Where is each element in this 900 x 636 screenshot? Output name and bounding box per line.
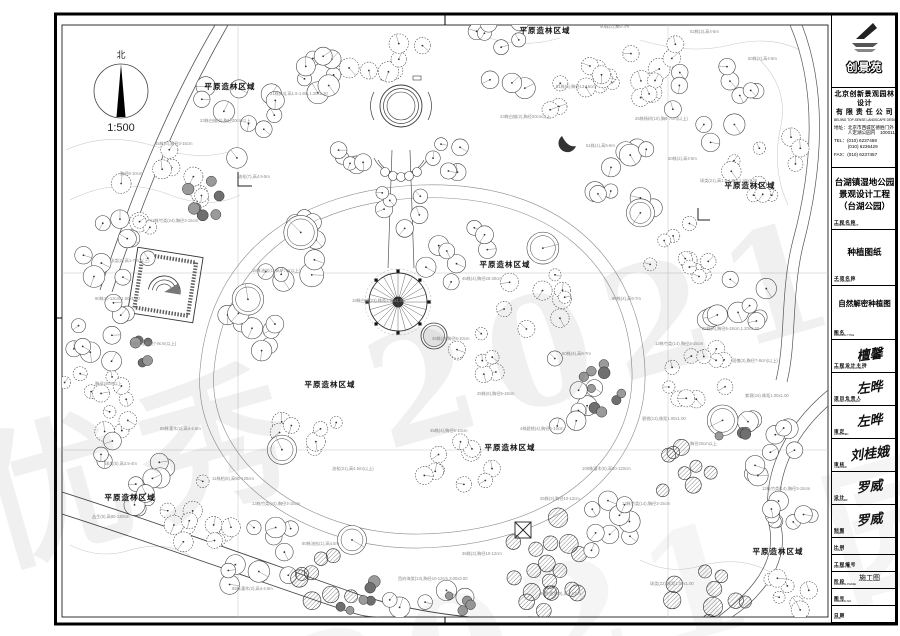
project-name-cell: 台湖镇湿地公园 景观设计工程 （台湖公园） 工程名称 NAME OF PROJE… xyxy=(832,168,897,230)
plant-annotation: 25株(6),胸径5-18cm xyxy=(477,390,515,397)
plant-annotation: 90株(2),高6-7m xyxy=(600,23,629,30)
road-left-curve xyxy=(100,25,228,292)
plant-annotation: 胸径8-10cm xyxy=(120,170,143,177)
row-label-en: DRAWING NO. xyxy=(834,601,852,604)
plant-annotation: 31株(24),高1.5-1.8m,1.20x1.20 xyxy=(270,90,328,97)
region-label: 平原造林区域 xyxy=(520,25,571,35)
signature: 左晔 xyxy=(843,404,897,435)
fan-flowerbed xyxy=(374,158,428,182)
plant-annotation: 13株竹类(24),胸径3-15cm xyxy=(252,500,301,507)
plant-annotation: 球类(2),高1-7m(以上) xyxy=(110,257,150,264)
titleblock-row-5: 制图DRAWN罗威 xyxy=(832,505,897,538)
titleblock-rows: 工程设计主持PROJECT CONSULTANT檀馨项目负责人PROJECT M… xyxy=(832,340,897,623)
row-label-en: PROJECT MANAGER xyxy=(834,401,862,404)
subitem-name: 种植图纸 xyxy=(832,246,897,258)
titleblock-row-6: 比例SCALE xyxy=(832,538,897,555)
company-name-line1: 北京创新景观园林设计 xyxy=(834,90,895,108)
plant-annotation: 90株10-12cm,1.00x1.00 xyxy=(95,295,140,302)
region-label: 平原造林区域 xyxy=(753,546,804,556)
road-bottom-band xyxy=(62,492,470,617)
plant-annotation: 35株(3),胸径10-12cm xyxy=(462,550,502,557)
plant-annotation: 13株竹类(24),胸径3-15cm xyxy=(150,217,199,224)
plant-annotation: 25株(3),胸径10-12cm xyxy=(540,495,580,502)
plant-annotation: 90株(4),高6-7m xyxy=(612,295,641,302)
titleblock-row-0: 工程设计主持PROJECT CONSULTANT檀馨 xyxy=(832,340,897,373)
tree-symbols xyxy=(58,0,818,636)
drawing-title: 自然解密种植图 xyxy=(832,298,897,310)
plant-annotation: 50株(2),高4-5m xyxy=(668,155,697,162)
scale-label: 1:500 xyxy=(107,122,135,134)
region-label: 平原造林区域 xyxy=(105,492,156,502)
drawing-title-label-en: DRAWING TITLE xyxy=(834,335,854,338)
square-structure xyxy=(515,522,531,538)
titleblock-row-10: 日期DATE xyxy=(832,606,897,623)
plant-annotation: 18株油松(1),高5-7m(以上) xyxy=(252,267,301,274)
signature: 罗威 xyxy=(843,470,897,501)
plant-annotation: 52株(3),高4-5m xyxy=(690,28,719,35)
plant-annotation: 45株(4),胸径5-10cm xyxy=(430,427,468,434)
region-label: 平原造林区域 xyxy=(305,379,356,389)
titleblock-row-9: 图号DRAWING NO. xyxy=(832,589,897,606)
plant-annotation: 13株竹类(14),胸径3-15cm xyxy=(655,340,704,347)
row-value xyxy=(844,556,895,565)
company-fax: FAX：(010) 6237457 xyxy=(834,152,895,158)
plant-annotation: 丛生(5),高80-120cm xyxy=(92,513,130,520)
region-labels: 平原造林区域平原造林区域平原造林区域平原造林区域平原造林区域平原造林区域平原造林… xyxy=(105,25,804,556)
row-label-en: DATE xyxy=(834,618,845,621)
company-address: 地址：北京市西城区德胜门外 人定湖公园内 100011 xyxy=(834,125,895,136)
plant-annotation: 45株(6),胸径3-15cm xyxy=(155,140,193,147)
row-label-en: SCALE xyxy=(834,550,845,553)
plant-annotation: 23株白蜡(2),胸径20cm以上 xyxy=(500,113,551,120)
plant-annotation: 23株白蜡(2),胸径20cm以上 xyxy=(200,117,251,124)
plant-annotation: 13株竹类(14),胸径3-15cm xyxy=(762,485,811,492)
row-label-en: PROJECT NO. xyxy=(834,567,856,570)
signature: 罗威 xyxy=(843,503,897,534)
plant-annotation: 紫薇(16),株距1.00x1.00 xyxy=(745,392,789,399)
plant-annotation: 油松(7),高4.5-5m xyxy=(238,173,270,180)
signature: 左晔 xyxy=(843,371,897,402)
company-name-line2: 有 限 责 任 公 司 xyxy=(834,108,895,117)
company-tel: TEL：(010) 6237458 (010) 6236429 xyxy=(834,138,895,149)
row-label-en: DRAWING PHASE xyxy=(834,584,856,587)
plant-annotation: 50株(4),高6-7m xyxy=(562,350,591,357)
plant-annotation: 85株灌木(2),高4-4.5m xyxy=(232,585,273,592)
title-block: 创景苑 北京创新景观园林设计 有 限 责 任 公 司 BEIJING TOP-S… xyxy=(831,13,897,624)
plant-annotation: 108株灌木(5),高80-120cm xyxy=(582,465,631,472)
plant-annotation: 4株碧桃(4),胸径5-10cm xyxy=(520,425,564,432)
region-label: 平原造林区域 xyxy=(725,180,776,190)
plant-annotation: 98株灌木(3),高4-4.5m xyxy=(540,590,581,597)
plant-annotation: 西府海棠(13),胸径10-12cm,3.00x3.00 xyxy=(398,575,468,582)
plant-annotation: 球类(5),高3.5-4m xyxy=(105,460,137,467)
plant-annotation: 45株(4),胸径25-30cm xyxy=(462,275,502,282)
logo-cell: 创景苑 xyxy=(832,13,897,88)
row-label-en: PROJECT CONSULTANT xyxy=(834,368,868,371)
plant-annotation: 13株竹类(14),胸径3-15cm xyxy=(622,500,671,507)
plant-annotation: 85株灌木(2),高4-4.5m xyxy=(160,425,201,432)
subitem-cell: 种植图纸 子项名称 SUB PROJECT xyxy=(832,230,897,286)
project-name: 台湖镇湿地公园 景观设计工程 （台湖公园） xyxy=(832,176,897,212)
plant-annotation: 球类(22),株距1.00x1.00 xyxy=(650,580,694,587)
company-name-en: BEIJING TOP-SENSE LANDSCAPE DESIGN LTD.C… xyxy=(834,118,895,122)
north-arrow: 北 1:500 xyxy=(94,50,148,134)
signature: 檀馨 xyxy=(843,338,897,369)
plant-annotation: 胸径20cm以上 xyxy=(95,380,122,387)
plant-annotation: 80株油松(1),高4.5m xyxy=(302,540,340,547)
circular-plaza xyxy=(371,76,432,127)
titleblock-row-4: 设计DESIGNER罗威 xyxy=(832,472,897,505)
region-label: 平原造林区域 xyxy=(485,442,536,452)
plant-annotation: 胸径20cm以上 xyxy=(690,440,717,447)
pond-rock xyxy=(558,136,576,152)
plant-annotation: 50株(2),高4-5m xyxy=(748,55,777,62)
row-label-en: DRAWN xyxy=(834,533,845,536)
region-label: 平原造林区域 xyxy=(480,259,531,269)
plant-annotation: 51株(5),胸径13-15cm xyxy=(556,83,596,90)
titleblock-row-7: 工程编号PROJECT NO. xyxy=(832,555,897,572)
plant-annotation: 11株柏(5),高80-120cm xyxy=(212,475,254,482)
company-cell: 北京创新景观园林设计 有 限 责 任 公 司 BEIJING TOP-SENSE… xyxy=(832,88,897,168)
row-value xyxy=(844,539,895,548)
plant-annotation: 碧桃(13),株距1.00x1.00 xyxy=(642,415,686,422)
drawing-sheet: 90株(2),高6-7m52株(3),高4-5m50株(2),高4-5m51株(… xyxy=(0,0,900,636)
company-logo-icon xyxy=(846,19,884,53)
plant-annotation: 26株杨树(10),胸6-7cm(以上) xyxy=(635,115,688,122)
drawing-title-cell: 自然解密种植图 图名 DRAWING TITLE xyxy=(832,286,897,340)
logo-text: 创景苑 xyxy=(832,59,897,75)
plant-annotation: 国槐(3),胸径7-8cm(以上) xyxy=(732,357,778,364)
north-label: 北 xyxy=(116,50,125,60)
titleblock-row-1: 项目负责人PROJECT MANAGER左晔 xyxy=(832,373,897,406)
row-value xyxy=(844,607,895,616)
plant-annotation: 油松(21),高4.5m(以上) xyxy=(332,465,374,472)
row-value xyxy=(844,590,895,599)
loop-path xyxy=(200,185,645,548)
subitem-label-en: SUB PROJECT xyxy=(834,281,856,284)
titleblock-row-2: 审定APPROVED左晔 xyxy=(832,406,897,439)
signature: 刘桂娥 xyxy=(843,437,897,468)
titleblock-row-8: 阶段DRAWING PHASE施工图 xyxy=(832,572,897,589)
row-value: 施工图 xyxy=(844,573,895,582)
plant-annotation: 18株白蜡(23),株距1.00x1.00 xyxy=(352,297,405,304)
plant-annotation: 24株(2),胸径7-8cm(以上) xyxy=(130,340,177,347)
project-label-en: NAME OF PROJECT xyxy=(834,225,859,228)
plant-annotation: 25株(6),胸径5-18cm,1.20x1.20 xyxy=(702,325,760,332)
titleblock-row-3: 审核CHECKED刘桂娥 xyxy=(832,439,897,472)
region-label: 平原造林区域 xyxy=(205,81,256,91)
plant-annotation: 45株(4),胸径5-10cm xyxy=(432,335,470,342)
plant-annotation: 51株(1),高5-6m xyxy=(586,142,615,149)
site-plan: 90株(2),高6-7m52株(3),高4-5m50株(2),高4-5m51株(… xyxy=(0,0,900,636)
